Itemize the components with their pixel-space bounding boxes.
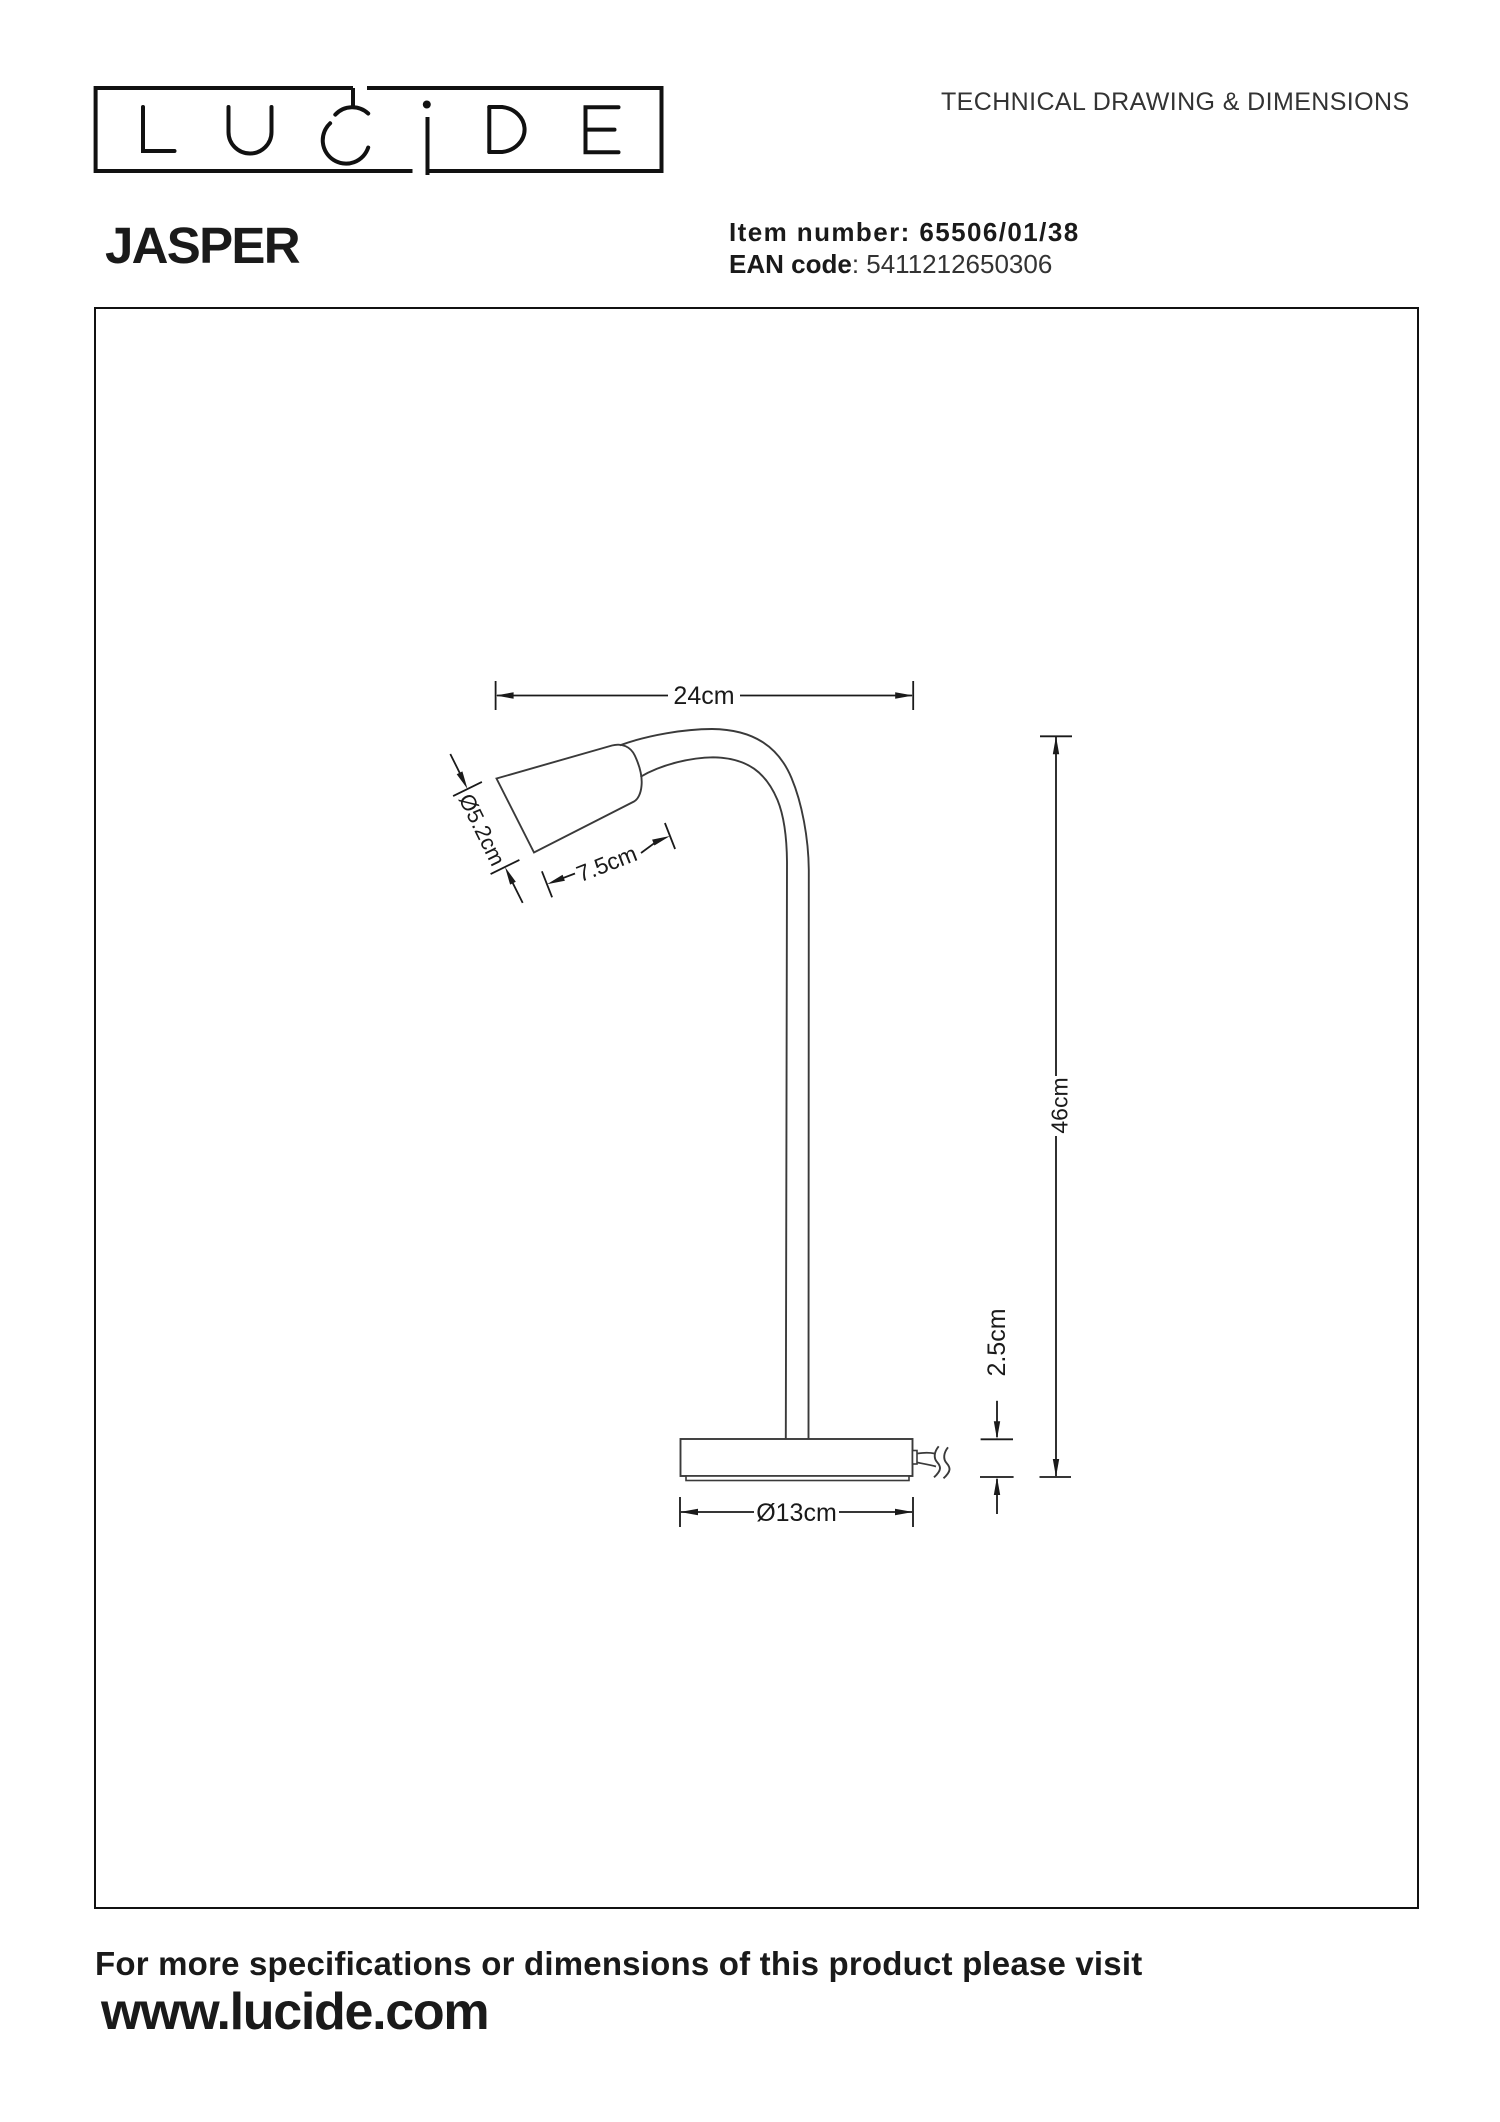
svg-text:24cm: 24cm <box>673 682 734 710</box>
svg-text:2.5cm: 2.5cm <box>983 1308 1011 1376</box>
svg-text:7.5cm: 7.5cm <box>573 840 641 887</box>
svg-text:Ø13cm: Ø13cm <box>756 1499 837 1527</box>
svg-text:46cm: 46cm <box>1047 1077 1073 1133</box>
svg-text:Ø5.2cm: Ø5.2cm <box>454 790 510 870</box>
